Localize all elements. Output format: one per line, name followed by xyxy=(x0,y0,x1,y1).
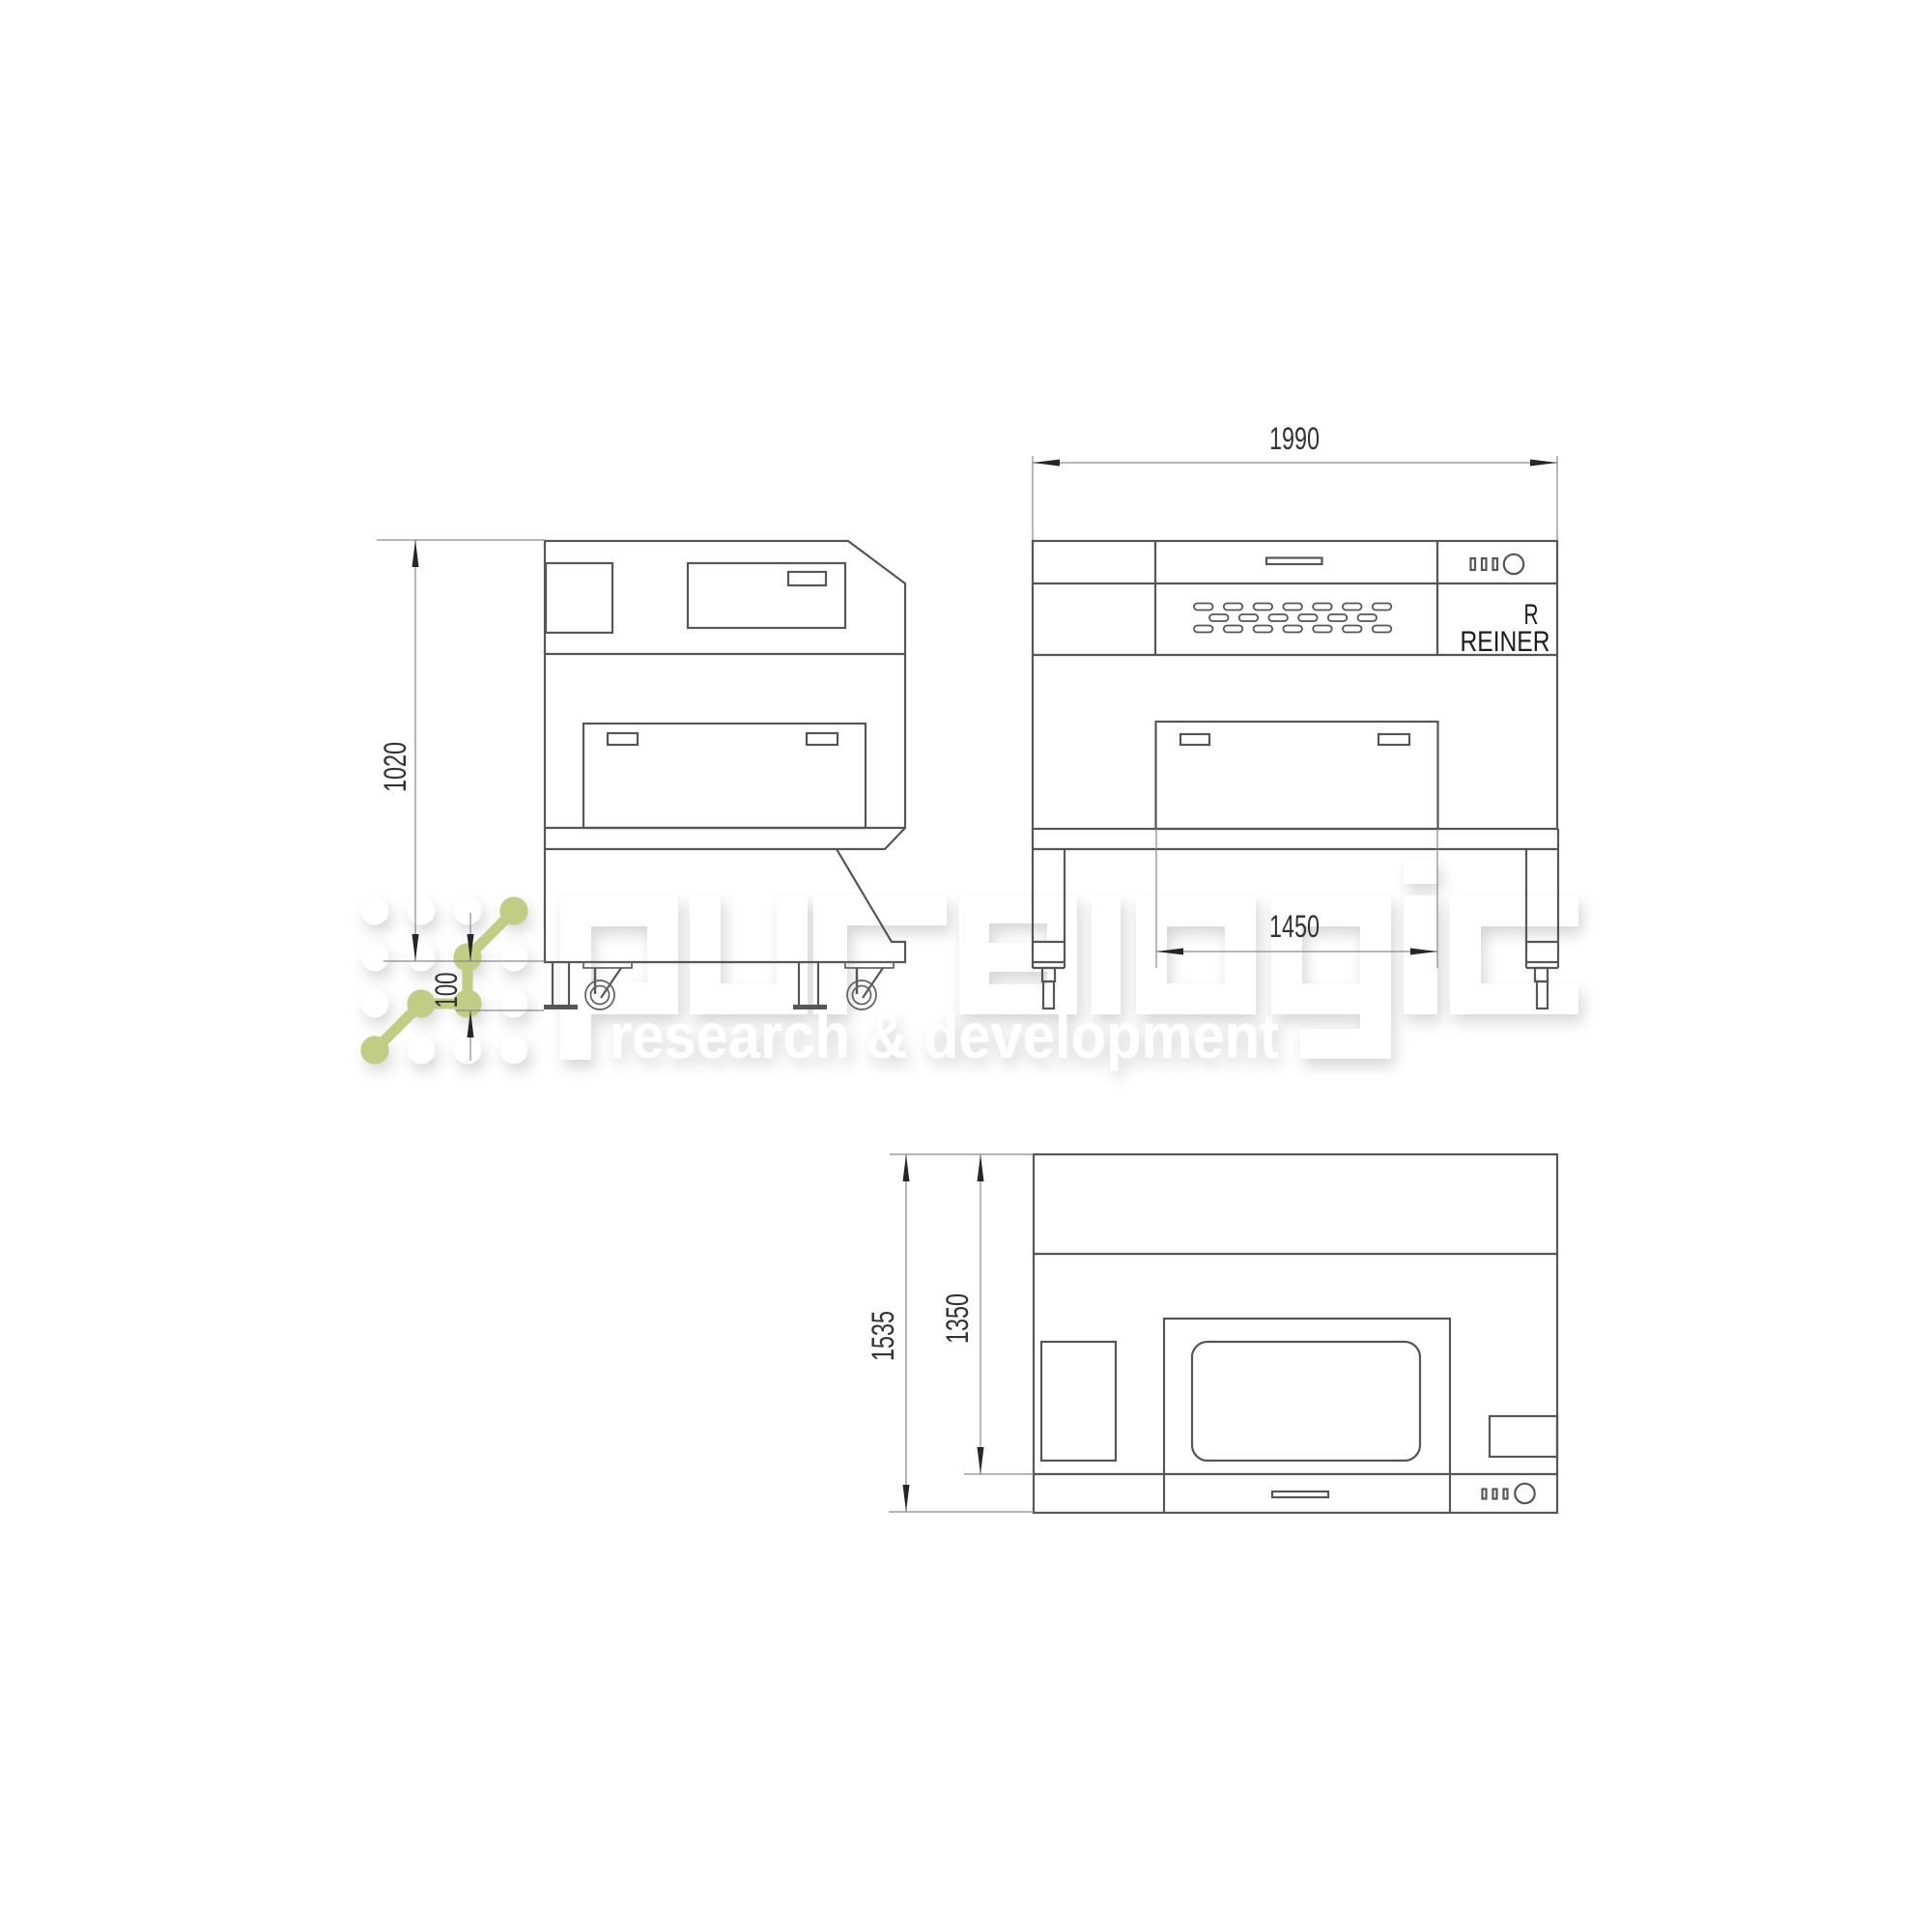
svg-text:REINER: REINER xyxy=(1461,626,1550,658)
svg-text:1020: 1020 xyxy=(378,742,412,792)
svg-text:100: 100 xyxy=(429,973,464,1009)
svg-text:1535: 1535 xyxy=(866,1311,900,1361)
svg-text:research & development: research & development xyxy=(610,1000,1279,1071)
svg-text:1450: 1450 xyxy=(1269,909,1320,944)
svg-text:1990: 1990 xyxy=(1269,421,1320,456)
svg-text:1350: 1350 xyxy=(940,1293,975,1344)
